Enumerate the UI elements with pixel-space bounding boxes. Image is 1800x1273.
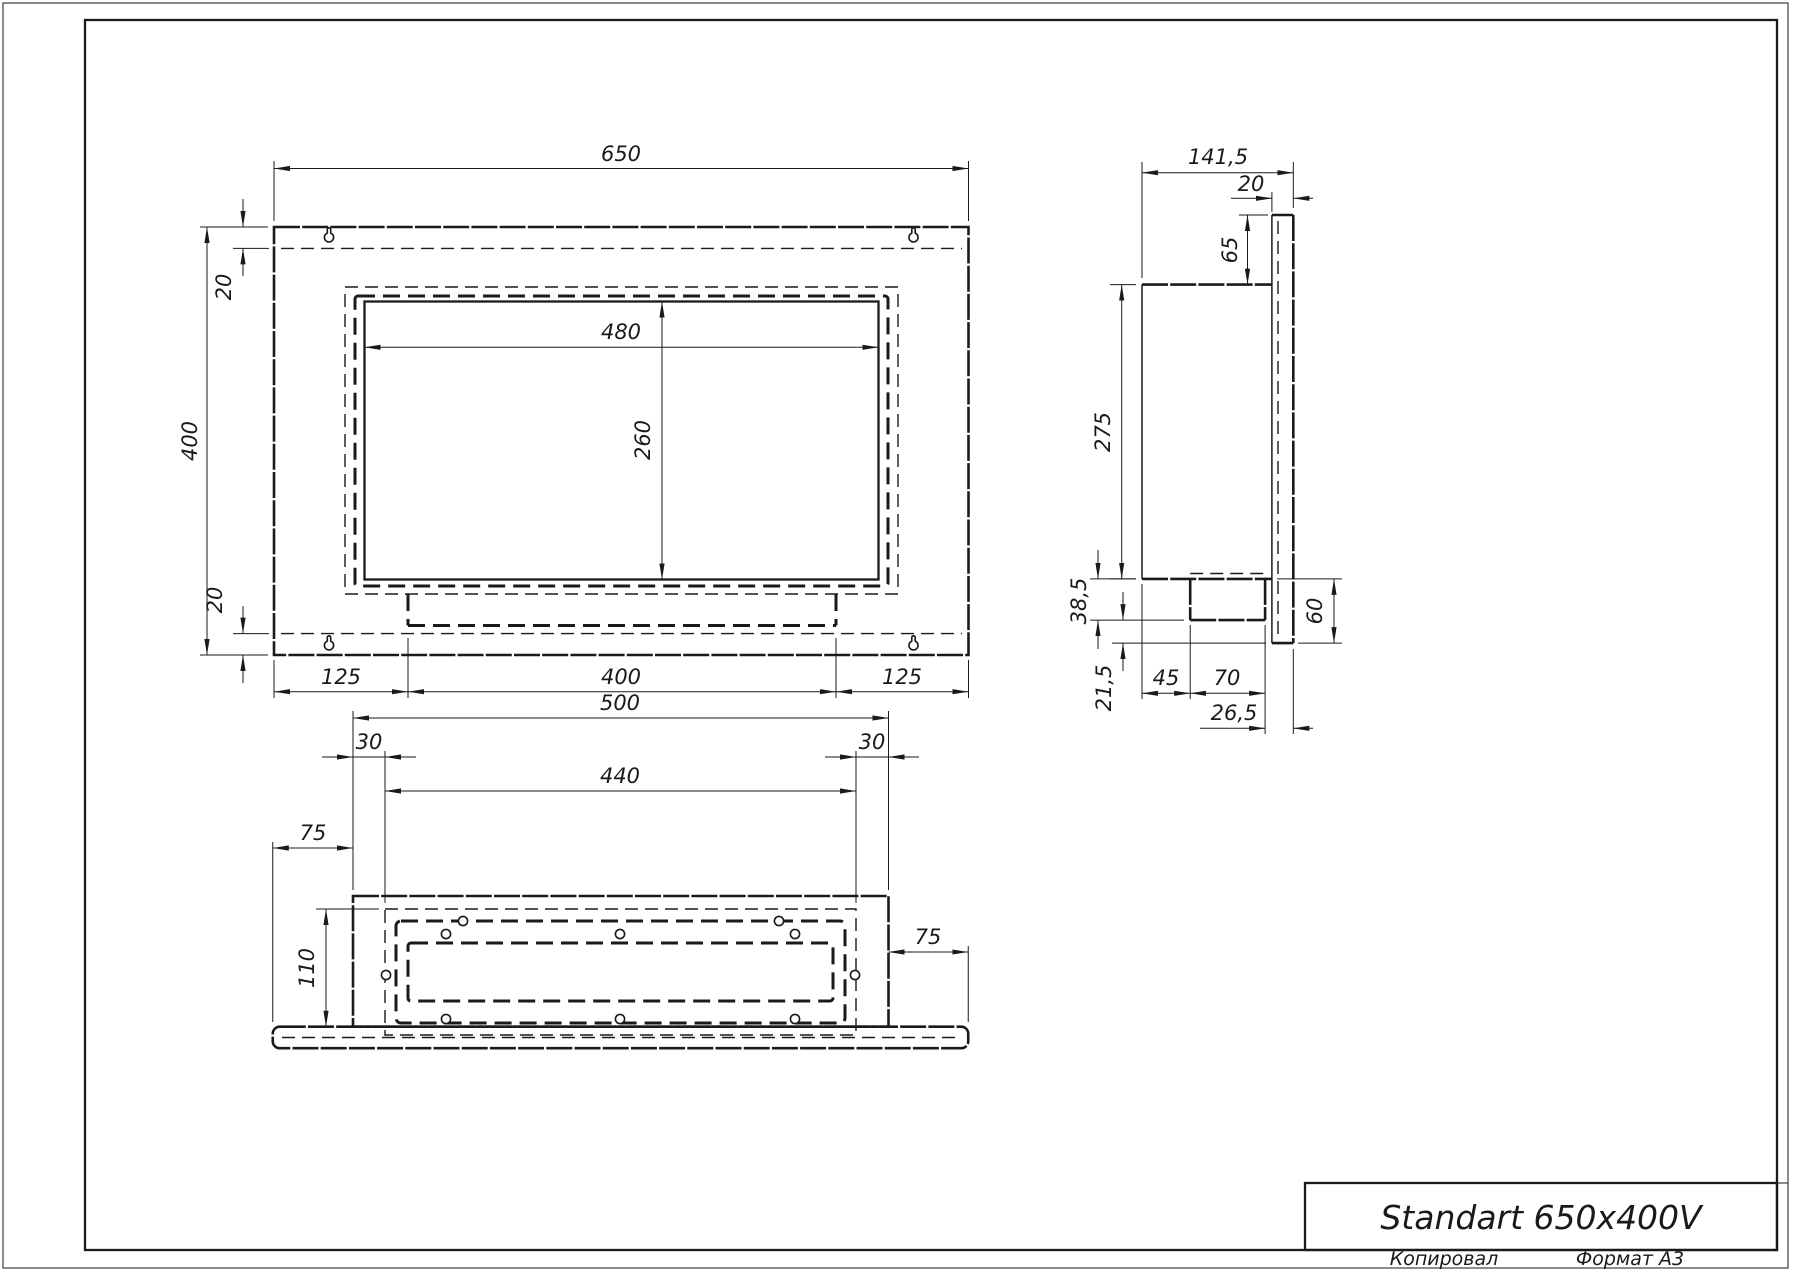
dim-label-60: 60 — [1303, 598, 1327, 625]
keyhole-slot-top-left — [324, 228, 333, 242]
dim-label-30-left: 30 — [356, 730, 383, 754]
bottom-hidden-tray-inner — [408, 943, 833, 1001]
dim-side-frame-depth: 20 — [1231, 172, 1313, 212]
hole — [790, 929, 799, 938]
hole — [381, 970, 390, 979]
dim-label-440: 440 — [600, 764, 640, 788]
dim-label-400: 400 — [178, 421, 202, 461]
dim-label-75-right: 75 — [915, 925, 942, 949]
hole — [850, 970, 859, 979]
dim-label-125-right: 125 — [882, 665, 922, 689]
dim-label-500: 500 — [600, 691, 640, 715]
dim-label-260: 260 — [631, 420, 655, 460]
drawing-title: Standart 650x400V — [1380, 1198, 1704, 1237]
side-view: 141,5 20 65 275 38,5 — [1067, 145, 1342, 734]
dim-bottom-inner-width: 440 — [385, 764, 856, 791]
format-label: Формат A3 — [1576, 1248, 1684, 1270]
hole — [615, 929, 624, 938]
dim-label-110: 110 — [295, 948, 319, 988]
drawing-canvas: 650 400 20 20 480 — [0, 0, 1800, 1273]
keyhole-slot-bottom-right — [909, 636, 918, 650]
bottom-view: 500 30 30 440 75 — [273, 691, 969, 1048]
dim-label-20-side: 20 — [1238, 172, 1265, 196]
dim-label-75-left: 75 — [300, 821, 327, 845]
dim-label-26-5: 26,5 — [1211, 701, 1258, 725]
dim-label-480: 480 — [601, 320, 641, 344]
dim-side-front-gap: 26,5 — [1200, 649, 1313, 734]
dim-label-141-5: 141,5 — [1188, 145, 1248, 169]
dim-label-400-bottom: 400 — [601, 665, 641, 689]
dim-label-650: 650 — [601, 142, 641, 166]
bottom-holes — [381, 916, 859, 1023]
dim-label-30-right: 30 — [859, 730, 886, 754]
dim-label-125-left: 125 — [321, 665, 361, 689]
drawing-sheet: 650 400 20 20 480 — [0, 0, 1800, 1273]
dim-bottom-overhang-left: 75 — [273, 821, 353, 1022]
dim-front-width: 650 — [274, 142, 969, 221]
dim-side-height: 275 — [1091, 285, 1136, 579]
hole — [458, 916, 467, 925]
dim-label-38-5: 38,5 — [1067, 578, 1091, 625]
dim-label-65: 65 — [1218, 237, 1242, 264]
dim-bottom-side-left: 30 — [322, 730, 416, 903]
dim-label-20-bottom: 20 — [203, 587, 227, 614]
dim-front-bottom-partition: 125 400 125 — [274, 638, 969, 698]
drawing-frame — [85, 20, 1777, 1250]
dim-label-45: 45 — [1153, 666, 1180, 690]
dim-label-275: 275 — [1091, 412, 1115, 452]
front-view: 650 400 20 20 480 — [178, 142, 969, 698]
hole — [774, 916, 783, 925]
hole — [790, 1014, 799, 1023]
dim-bottom-overhang-right: 75 — [889, 925, 969, 1022]
dim-front-top-inset: 20 — [212, 199, 269, 300]
title-block: Standart 650x400V Копировал Формат A3 — [1305, 1183, 1788, 1270]
dim-label-70: 70 — [1214, 666, 1241, 690]
dim-front-bottom-inset: 20 — [203, 587, 269, 683]
dim-opening-width: 480 — [365, 320, 879, 347]
dim-bottom-side-right: 30 — [825, 730, 919, 903]
keyhole-slot-top-right — [909, 228, 918, 242]
keyhole-slot-bottom-left — [324, 636, 333, 650]
sheet-edge — [3, 3, 1788, 1268]
dim-side-drop-total: 60 — [1277, 579, 1342, 643]
dim-side-drop-upper: 38,5 — [1067, 550, 1184, 649]
sheet-frame — [3, 3, 1788, 1268]
dim-label-21-5: 21,5 — [1092, 665, 1116, 712]
hole — [441, 1014, 450, 1023]
dim-label-20-top: 20 — [212, 274, 236, 301]
hole — [441, 929, 450, 938]
dim-side-frame-top-offset: 65 — [1218, 215, 1268, 285]
hole — [615, 1014, 624, 1023]
copied-label: Копировал — [1390, 1248, 1499, 1270]
bottom-body-outline — [353, 896, 889, 1027]
front-outer-outline — [274, 227, 969, 655]
dim-bottom-inner-depth: 110 — [295, 909, 379, 1027]
